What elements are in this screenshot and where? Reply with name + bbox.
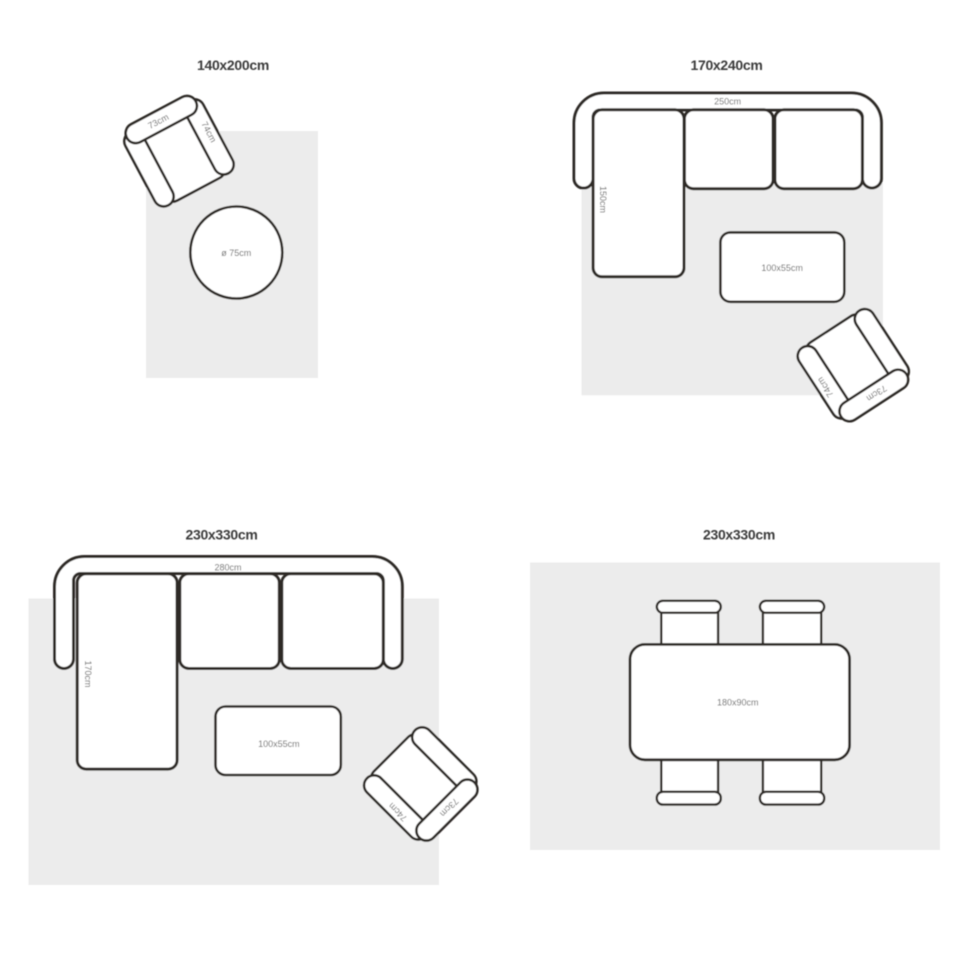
svg-text:180x90cm: 180x90cm	[717, 698, 759, 708]
svg-text:150cm: 150cm	[598, 186, 608, 213]
svg-text:100x55cm: 100x55cm	[258, 739, 300, 749]
svg-text:170x240cm: 170x240cm	[690, 57, 762, 73]
svg-text:140x200cm: 140x200cm	[197, 57, 269, 73]
svg-text:170cm: 170cm	[83, 660, 93, 687]
svg-text:230x330cm: 230x330cm	[703, 527, 775, 543]
svg-text:ø 75cm: ø 75cm	[221, 248, 251, 258]
svg-text:100x55cm: 100x55cm	[761, 263, 803, 273]
svg-text:280cm: 280cm	[214, 563, 241, 573]
svg-text:230x330cm: 230x330cm	[185, 527, 257, 543]
svg-text:250cm: 250cm	[714, 97, 741, 107]
